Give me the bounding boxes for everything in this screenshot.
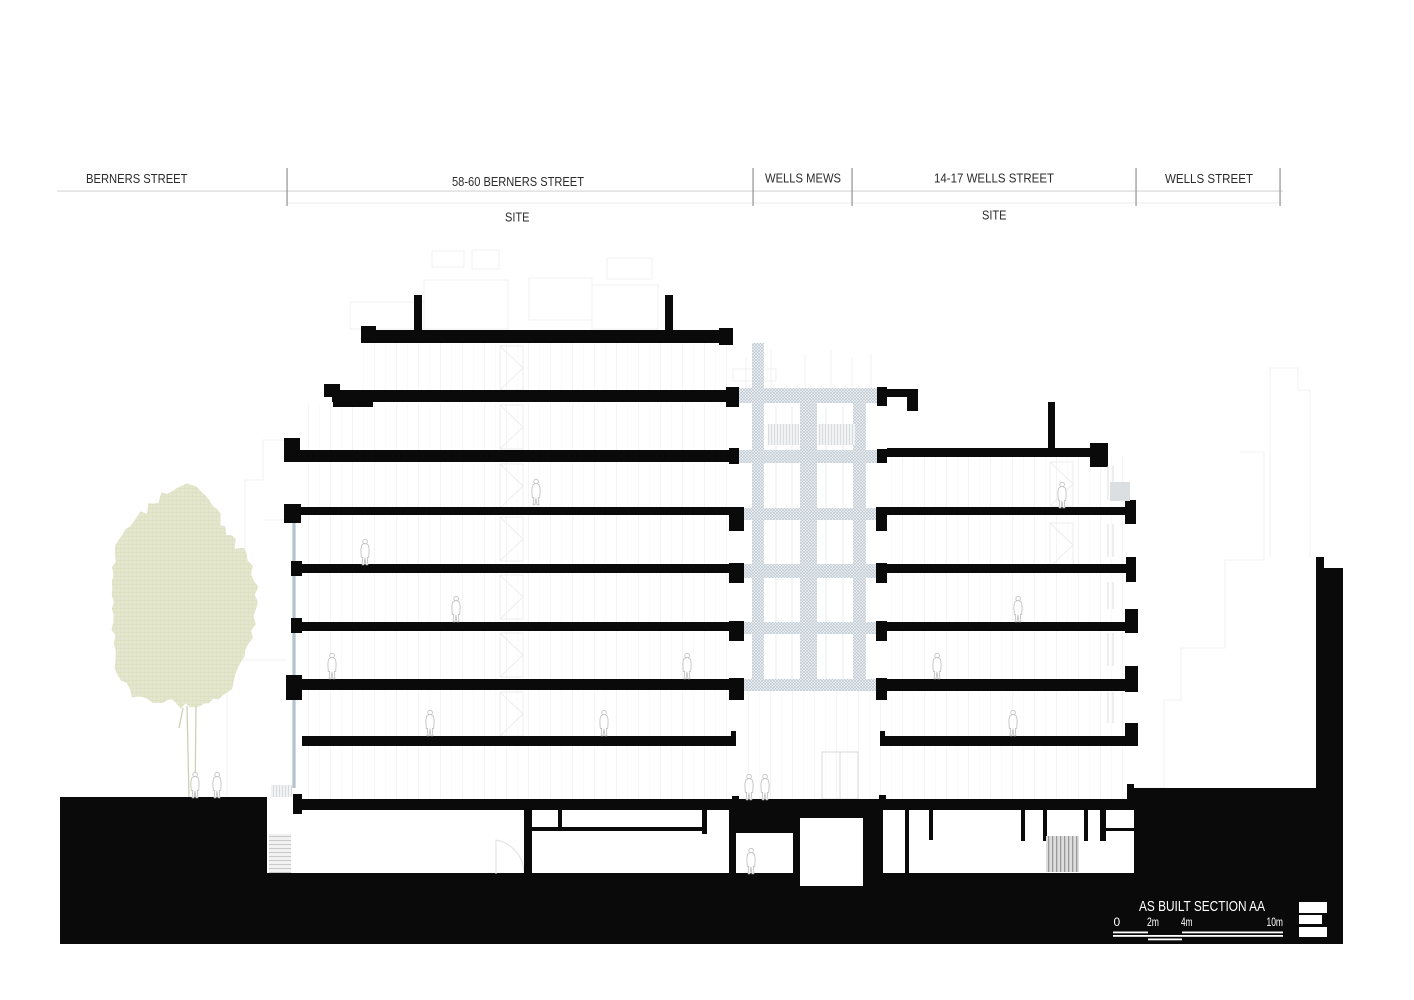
svg-text:WELLS MEWS: WELLS MEWS — [765, 171, 841, 186]
svg-text:4m: 4m — [1181, 915, 1193, 929]
svg-text:SITE: SITE — [505, 210, 530, 225]
svg-text:14-17 WELLS STREET: 14-17 WELLS STREET — [934, 171, 1054, 186]
svg-text:SITE: SITE — [982, 208, 1007, 223]
svg-text:WELLS STREET: WELLS STREET — [1165, 171, 1253, 186]
svg-text:AS BUILT SECTION AA: AS BUILT SECTION AA — [1139, 899, 1265, 915]
svg-text:10m: 10m — [1267, 915, 1284, 929]
svg-text:BERNERS STREET: BERNERS STREET — [86, 171, 188, 186]
svg-text:0: 0 — [1114, 915, 1121, 929]
svg-text:58-60 BERNERS STREET: 58-60 BERNERS STREET — [452, 174, 584, 189]
svg-text:2m: 2m — [1147, 915, 1159, 929]
